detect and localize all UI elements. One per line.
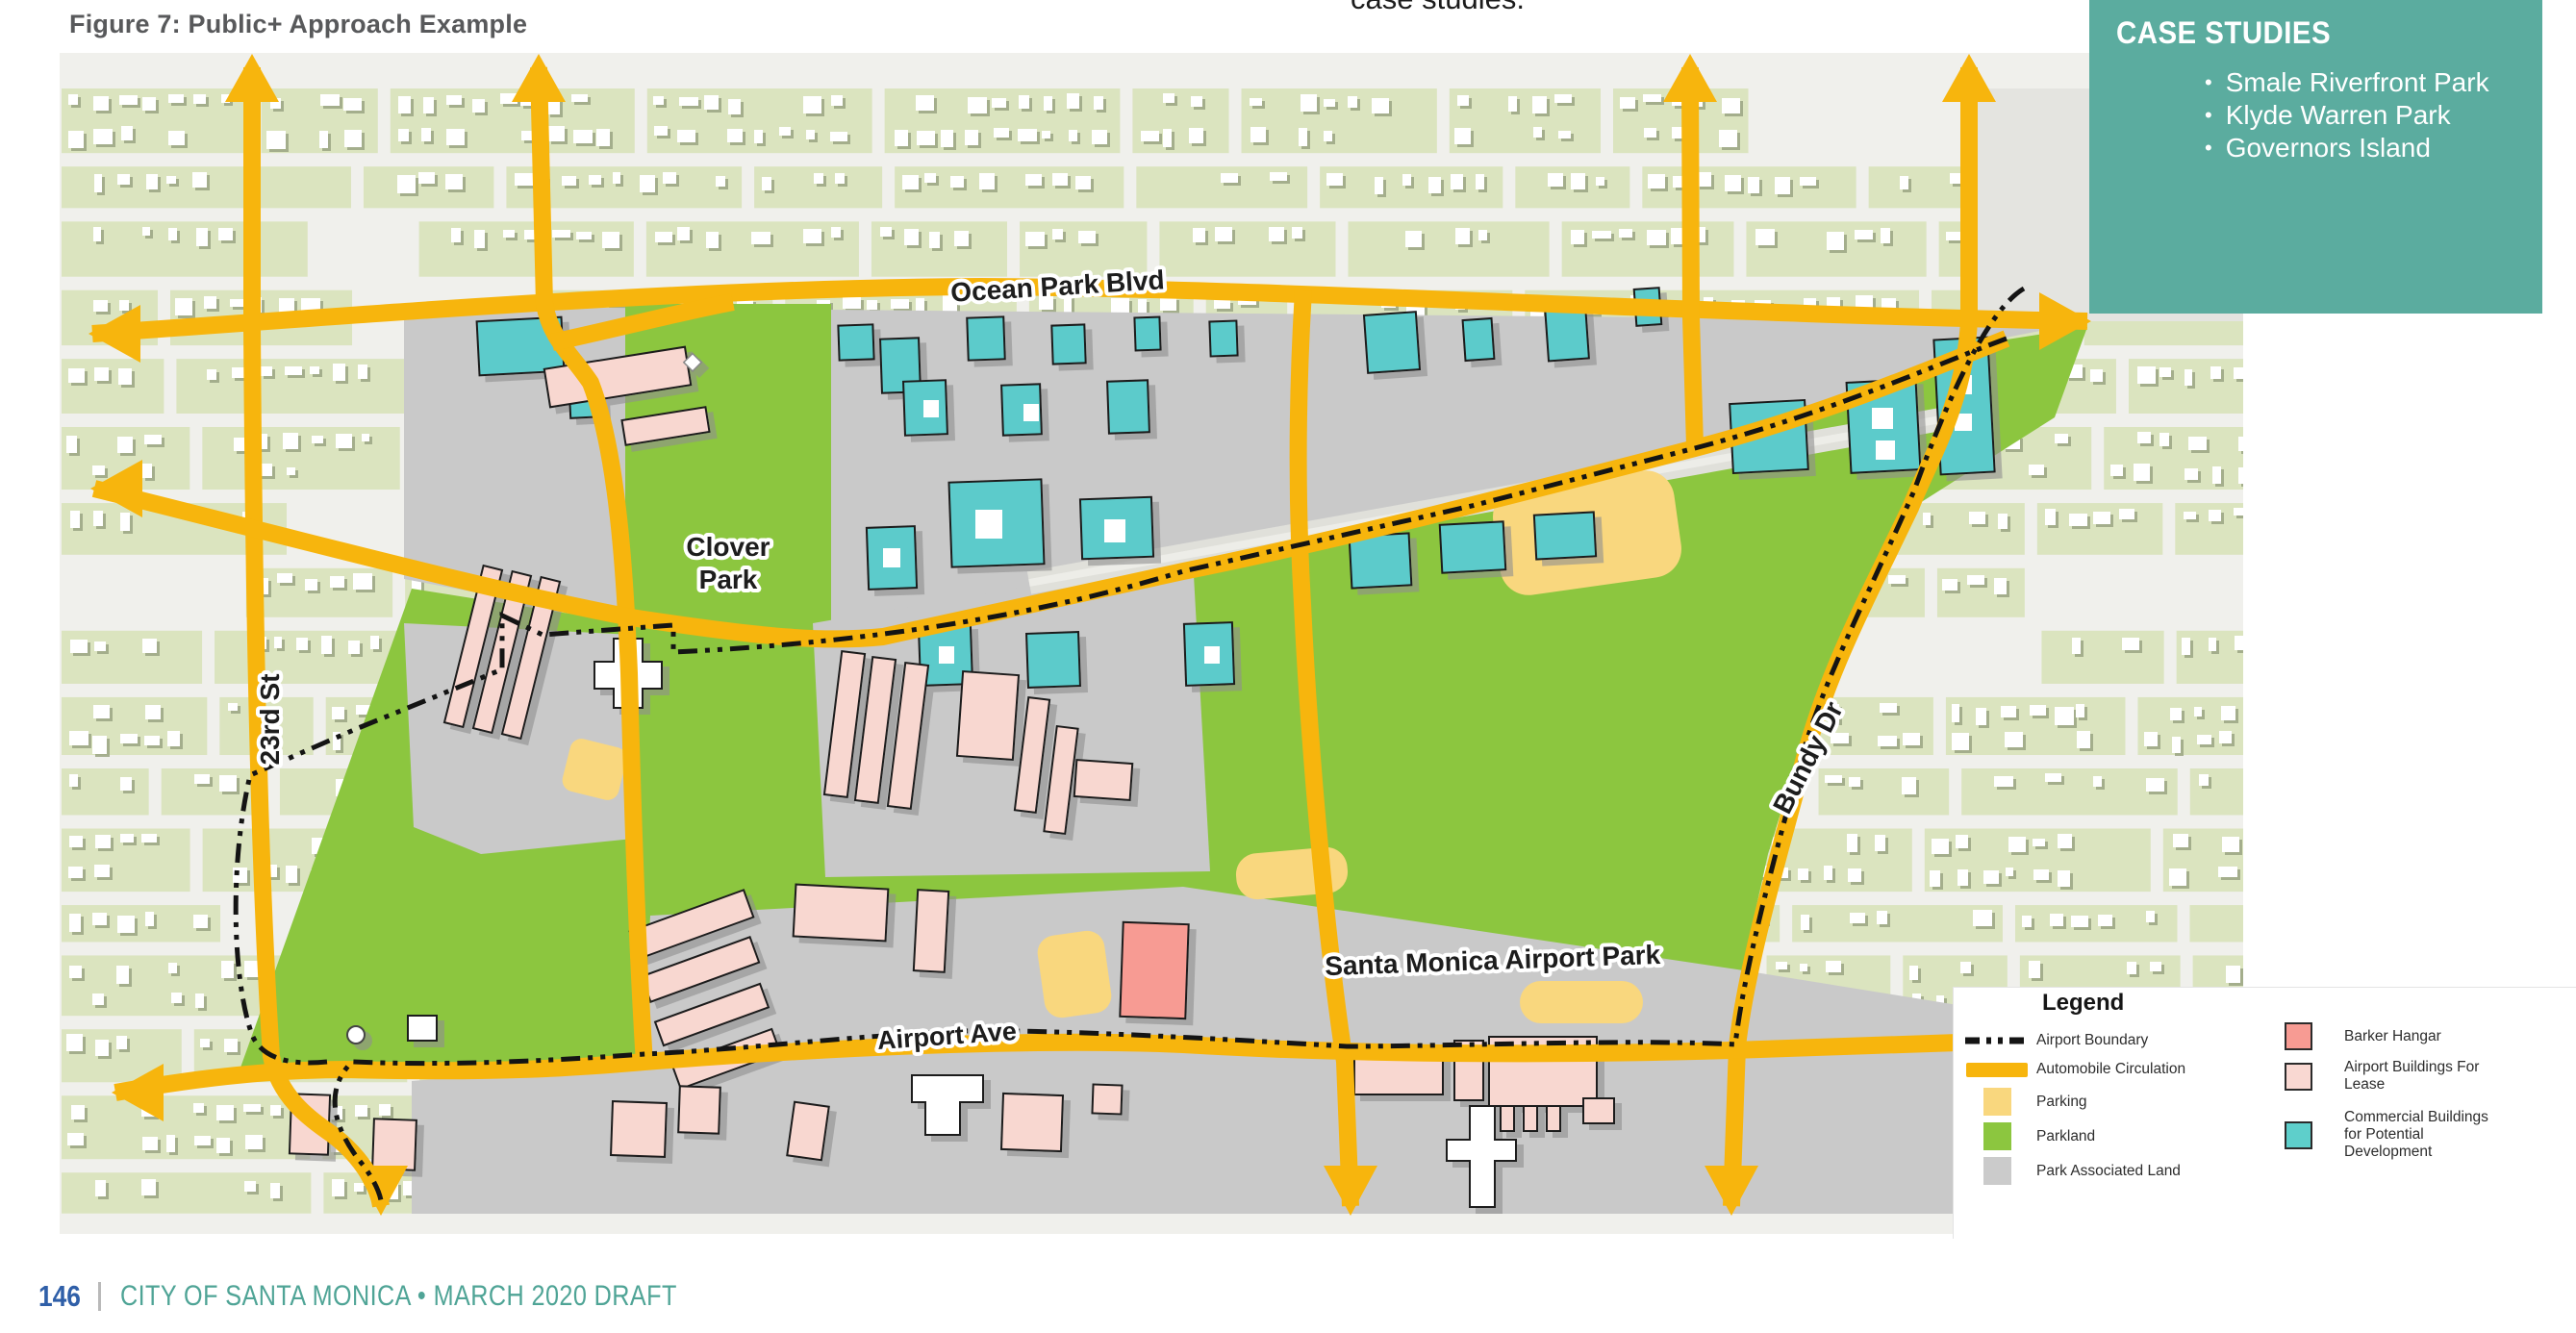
building — [1001, 1094, 1063, 1151]
building — [967, 316, 1005, 360]
page-footer: 146 CITY OF SANTA MONICA • MARCH 2020 DR… — [38, 1279, 783, 1314]
building — [1463, 318, 1495, 361]
building — [1026, 632, 1080, 688]
legend-row: Airport Boundary — [1957, 1032, 2148, 1049]
case-studies-panel: CASE STUDIES •Smale Riverfront Park •Kly… — [2089, 0, 2542, 314]
page-number: 146 — [38, 1279, 81, 1314]
map-marker-dot — [347, 1026, 365, 1044]
legend-row: Airport Buildings For Lease — [2252, 1059, 2498, 1094]
building — [1092, 1084, 1122, 1114]
bullet-icon: • — [2205, 66, 2212, 98]
legend-row: Park Associated Land — [1957, 1157, 2181, 1185]
road-north-vertical — [1690, 67, 1695, 446]
airport-buildings-swatch-icon — [2252, 1063, 2344, 1091]
building — [914, 890, 948, 972]
building — [1364, 312, 1420, 373]
parking-swatch-icon — [1957, 1088, 2036, 1116]
road-bar-icon — [1957, 1063, 2036, 1077]
building — [1074, 760, 1133, 800]
building — [611, 1101, 667, 1157]
legend-panel: Legend Airport Boundary Automobile Circu… — [1953, 987, 2576, 1239]
building — [1209, 321, 1237, 357]
clipped-paragraph-text: case studies. — [1351, 0, 1525, 16]
building — [408, 1016, 437, 1041]
area-label-clover-park-line1: Clover — [686, 532, 770, 562]
figure-title: Figure 7: Public+ Approach Example — [69, 10, 527, 39]
building — [1583, 1098, 1614, 1123]
building — [372, 1119, 417, 1170]
legend-row: Commercial Buildings for Potential Devel… — [2252, 1109, 2508, 1161]
case-study-item: •Klyde Warren Park — [2205, 99, 2522, 131]
case-studies-list: •Smale Riverfront Park •Klyde Warren Par… — [2205, 66, 2522, 163]
legend-title: Legend — [2042, 990, 2124, 1017]
building — [1120, 922, 1188, 1019]
dash-dot-line-icon — [1957, 1036, 2036, 1045]
legend-row: Barker Hangar — [2252, 1022, 2561, 1050]
building — [678, 1086, 720, 1133]
barker-hangar-swatch-icon — [2252, 1022, 2344, 1050]
legend-row: Automobile Circulation — [1957, 1061, 2185, 1078]
footer-text: CITY OF SANTA MONICA • MARCH 2020 DRAFT — [120, 1280, 677, 1313]
legend-row: Parking — [1957, 1088, 2087, 1116]
parking-area — [1520, 981, 1643, 1023]
bullet-icon: • — [2205, 99, 2212, 131]
parkland-swatch-icon — [1957, 1122, 2036, 1150]
building — [957, 671, 1019, 760]
street-label-23rd-st: 23rd St — [255, 674, 285, 766]
building — [1440, 521, 1506, 572]
building — [787, 1102, 828, 1160]
bullet-icon: • — [2205, 132, 2212, 163]
building — [1134, 317, 1160, 351]
footer-divider — [98, 1282, 101, 1311]
case-study-item: •Smale Riverfront Park — [2205, 66, 2522, 98]
commercial-buildings-swatch-icon — [2252, 1121, 2344, 1149]
building — [1051, 324, 1085, 364]
building — [1107, 380, 1149, 433]
legend-row: Parkland — [1957, 1122, 2095, 1150]
parking-area — [1035, 929, 1113, 1020]
building — [794, 885, 889, 942]
building — [1534, 512, 1596, 559]
area-label-clover-park-line2: Park — [699, 565, 758, 594]
park-associated-swatch-icon — [1957, 1157, 2036, 1185]
building — [838, 324, 873, 360]
case-study-item: •Governors Island — [2205, 132, 2522, 163]
case-studies-title: CASE STUDIES — [2116, 15, 2509, 51]
